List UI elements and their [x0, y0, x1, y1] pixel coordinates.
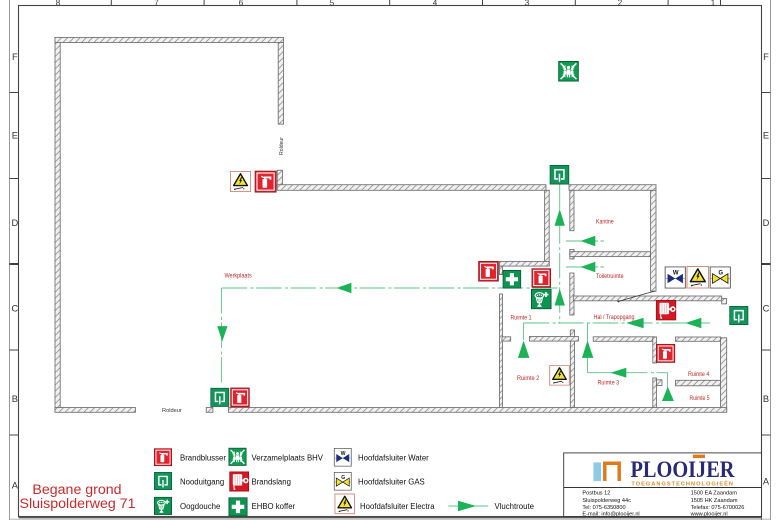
svg-text:E-mail: info@plooijer.nl: E-mail: info@plooijer.nl	[582, 512, 639, 518]
svg-text:Ruimte 2: Ruimte 2	[517, 375, 540, 382]
svg-text:B: B	[763, 394, 769, 404]
svg-text:Ruimte 1: Ruimte 1	[511, 315, 532, 322]
svg-text:E: E	[12, 130, 18, 140]
svg-text:Kantine: Kantine	[596, 219, 614, 226]
svg-text:C: C	[763, 303, 770, 313]
svg-text:A: A	[12, 480, 19, 490]
svg-text:3: 3	[525, 0, 530, 8]
svg-text:1505 HK Zaandam: 1505 HK Zaandam	[691, 498, 738, 504]
svg-text:Hoofdafsluiter Electra: Hoofdafsluiter Electra	[360, 502, 435, 511]
svg-text:D: D	[763, 218, 770, 228]
svg-text:5: 5	[330, 0, 335, 8]
svg-text:Vluchtroute: Vluchtroute	[495, 502, 534, 511]
svg-text:Tel: 075-6350800: Tel: 075-6350800	[582, 505, 625, 511]
svg-text:Roldeur: Roldeur	[279, 137, 285, 155]
svg-text:F: F	[12, 52, 18, 62]
svg-text:Oogdouche: Oogdouche	[180, 502, 220, 511]
svg-text:Hoofdafsluiter GAS: Hoofdafsluiter GAS	[358, 477, 425, 486]
svg-text:1: 1	[711, 0, 716, 8]
svg-text:Brandblusser: Brandblusser	[180, 453, 226, 462]
svg-text:4: 4	[433, 0, 438, 8]
svg-text:D: D	[11, 218, 18, 228]
svg-text:F: F	[763, 52, 769, 62]
svg-text:Verzamelplaats BHV: Verzamelplaats BHV	[252, 453, 324, 462]
svg-text:Ruimte 4: Ruimte 4	[688, 371, 710, 378]
svg-text:1500 EA Zaandam: 1500 EA Zaandam	[691, 491, 738, 497]
svg-text:E: E	[763, 130, 769, 140]
svg-text:PLOOIJER: PLOOIJER	[631, 457, 736, 483]
svg-text:Brandslang: Brandslang	[252, 477, 291, 486]
svg-text:www.plooijer.nl: www.plooijer.nl	[690, 512, 728, 518]
svg-text:Sluispolderweg 44c: Sluispolderweg 44c	[582, 498, 631, 504]
svg-text:Ruimte 3: Ruimte 3	[598, 380, 620, 387]
svg-text:7: 7	[154, 0, 159, 8]
svg-text:EHBO koffer: EHBO koffer	[252, 502, 296, 511]
svg-text:2: 2	[618, 0, 623, 8]
svg-text:Hal / Trapopgang: Hal / Trapopgang	[594, 314, 635, 321]
svg-text:Ruimte 5: Ruimte 5	[690, 395, 710, 402]
svg-text:Hoofdafsluiter Water: Hoofdafsluiter Water	[358, 453, 429, 462]
svg-text:A: A	[763, 477, 770, 487]
svg-text:Postbus 12: Postbus 12	[582, 491, 610, 497]
svg-text:Werkplaats: Werkplaats	[225, 273, 253, 280]
svg-text:Sluispolderweg 71: Sluispolderweg 71	[20, 496, 136, 512]
svg-text:6: 6	[239, 0, 244, 8]
svg-text:Roldeur: Roldeur	[162, 408, 182, 414]
svg-text:C: C	[11, 303, 18, 313]
svg-text:8: 8	[56, 0, 61, 8]
svg-text:B: B	[12, 394, 18, 404]
svg-text:Toiletruimte: Toiletruimte	[596, 273, 624, 280]
svg-text:TOEGANGSTECHNOLOGIEËN: TOEGANGSTECHNOLOGIEËN	[631, 480, 733, 487]
svg-text:Nooduitgang: Nooduitgang	[180, 477, 224, 486]
svg-text:Telefax: 075-6700026: Telefax: 075-6700026	[691, 505, 745, 511]
